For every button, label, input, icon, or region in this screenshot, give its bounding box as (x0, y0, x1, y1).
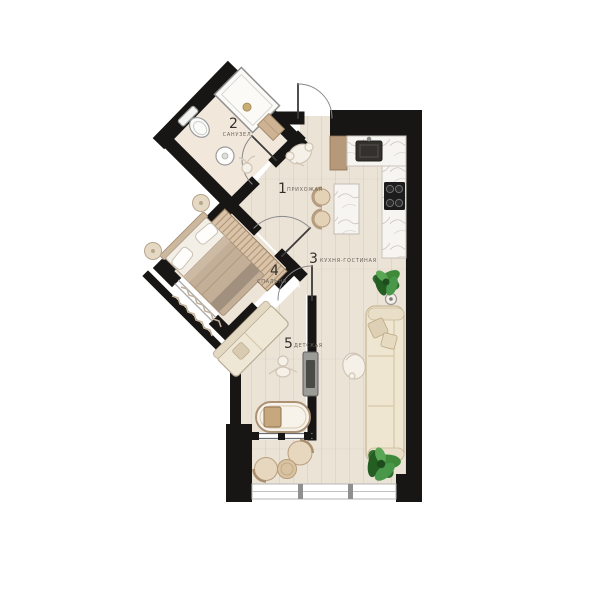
partition-post (252, 432, 259, 440)
cooktop (384, 182, 405, 210)
room-3-number: 3 (309, 251, 318, 267)
kitchen-island (334, 184, 359, 234)
tall-cabinet (330, 136, 347, 170)
side-table (278, 460, 297, 479)
room-4-name: СПАЛЬНЯ (257, 279, 287, 285)
room-2-name: САНУЗЕЛ (223, 132, 252, 138)
tv-screen (306, 360, 315, 388)
room-2-number: 2 (229, 116, 238, 132)
partition-post (304, 432, 311, 440)
wall-top (330, 110, 416, 136)
room-5-number: 5 (284, 336, 293, 352)
room-4-number: 4 (270, 263, 279, 279)
sofa (366, 306, 404, 462)
crib-mattress (264, 407, 281, 427)
wall-right (406, 110, 422, 502)
crib (256, 402, 310, 432)
partition-post (278, 432, 285, 440)
bath-sink (216, 147, 234, 165)
floor-plan-page: 1 ПРИХОЖАЯ 2 САНУЗЕЛ 3 КУХНЯ-ГОСТИНАЯ 4 … (0, 0, 600, 600)
room-3-name: КУХНЯ-ГОСТИНАЯ (320, 258, 377, 264)
faucet-icon (367, 137, 372, 142)
room-1-name: ПРИХОЖАЯ (287, 187, 323, 193)
room-1-number: 1 (278, 181, 287, 197)
counter-right (382, 166, 406, 258)
dining-chair (254, 458, 278, 482)
wall-corner-bl (226, 424, 252, 502)
room-5-name: ДЕТСКАЯ (294, 343, 323, 349)
floor-plan-svg: 1 ПРИХОЖАЯ 2 САНУЗЕЛ 3 КУХНЯ-ГОСТИНАЯ 4 … (0, 0, 600, 600)
bottom-window (252, 484, 396, 499)
wall-corner-br (396, 474, 422, 502)
throw-pillow (380, 332, 397, 349)
